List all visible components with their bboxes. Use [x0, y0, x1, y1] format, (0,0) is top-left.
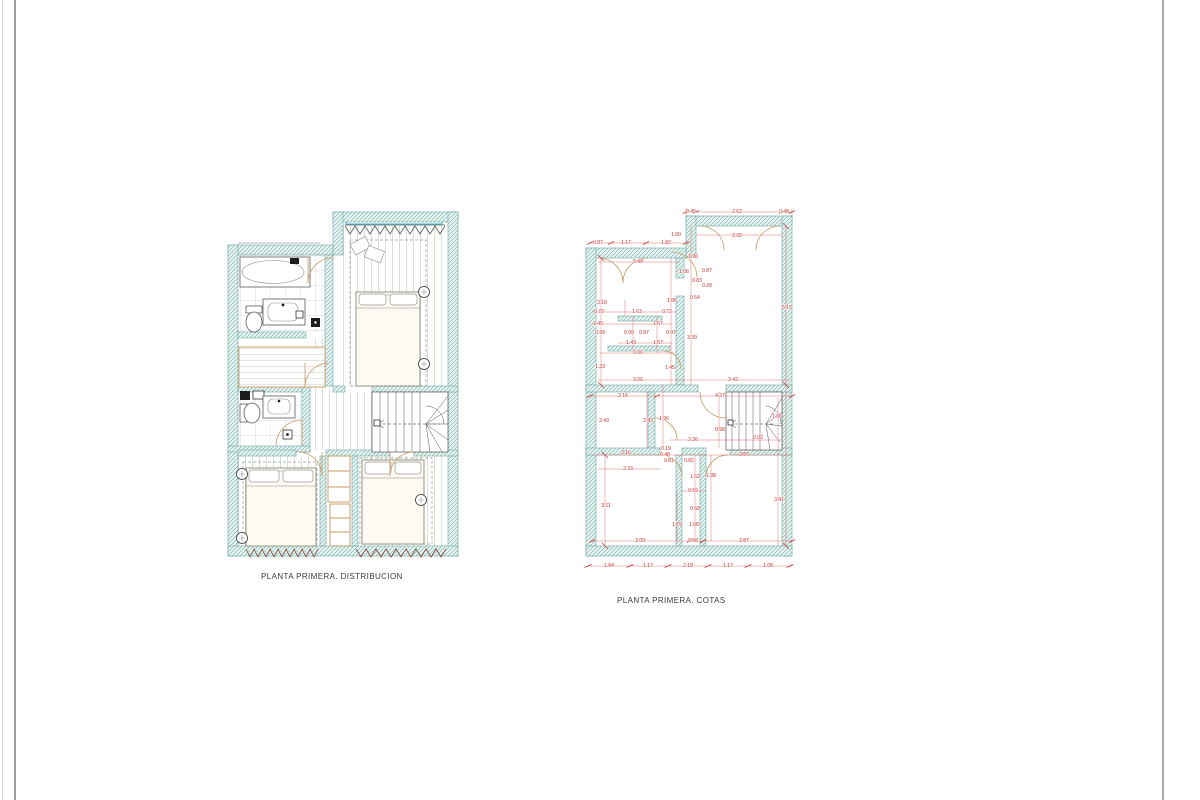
dimension-label: 1.57: [653, 340, 663, 346]
staircase: [372, 392, 448, 452]
dimension-label: 2.18: [683, 563, 693, 569]
dimension-label: 0.72: [662, 309, 672, 315]
plan-title-distribucion: PLANTA PRIMERA. DISTRIBUCION: [261, 572, 403, 581]
dimension-label: 0.82: [684, 458, 694, 464]
bed-left: [246, 468, 316, 546]
windows-cotas: [598, 218, 780, 549]
cabinet-symbol: [253, 391, 264, 399]
dimension-label: 2.43: [643, 418, 653, 424]
dimension-label: 1.17: [643, 563, 653, 569]
dimension-label: 3.39: [687, 335, 697, 341]
dimension-label: 2.33: [623, 466, 633, 472]
bed-right: [362, 460, 424, 544]
dimension-label: 1.17: [621, 240, 631, 246]
electrical-symbol-bath: [311, 318, 320, 327]
dimension-label: 0.97: [666, 330, 676, 336]
wall-lamp-icon-right: [416, 495, 427, 506]
drawing-sheet: 0.452.620.482.921.000.871.171.825.481.90…: [0, 0, 1200, 800]
dimension-label: 2.92: [732, 233, 742, 239]
shower-symbol: [296, 311, 303, 318]
dimension-label: 0.83: [692, 278, 702, 284]
dimension-label: 4.37: [715, 393, 725, 399]
dimension-label: 0.59: [688, 488, 698, 494]
bathtub: [240, 257, 310, 287]
dimension-label: 1.06: [679, 269, 689, 275]
dimension-label: 5.48: [633, 259, 643, 265]
dimension-label: 2.02: [753, 435, 763, 441]
dimension-label: 0.54: [690, 295, 700, 301]
dimension-label: 0.97: [639, 330, 649, 336]
sheet-border-left-outer: [2, 0, 3, 800]
dimension-label: 1.84: [604, 563, 614, 569]
dimension-label: 1.45: [665, 365, 675, 371]
washbasin-wc: [263, 396, 295, 418]
dimension-label: 1.06: [772, 414, 782, 420]
dimension-label: 1.43: [626, 340, 636, 346]
dimension-label: 1.79: [672, 522, 682, 528]
dimension-label: 2.16: [621, 450, 631, 456]
dimension-label: 1.88: [706, 473, 716, 479]
dimension-label: 0.99: [595, 330, 605, 336]
dimension-label: 2.62: [732, 209, 742, 215]
dimension-label: 2.87: [739, 452, 749, 458]
dimension-label: 5.17: [782, 305, 792, 311]
dimension-label: 1.96: [659, 416, 669, 422]
dimension-label: 1.82: [661, 240, 671, 246]
dimension-label: 0.98: [715, 427, 725, 433]
dimension-label: 3.11: [601, 503, 611, 509]
staircase-cotas: [726, 392, 782, 450]
dimension-label: 1.45: [593, 321, 603, 327]
dimension-label: 1.00: [671, 232, 681, 238]
dimension-label: 1.57: [653, 321, 663, 327]
dimension-label: 0.28: [702, 283, 712, 289]
dimension-label: 3.06: [633, 350, 643, 356]
dimension-label: 0.58: [688, 538, 698, 544]
dimension-label: 1.06: [667, 298, 677, 304]
dimension-label: 3.18: [597, 300, 607, 306]
dimension-label: 2.36: [688, 437, 698, 443]
dimension-label: 0.87: [593, 240, 603, 246]
plan-title-cotas: PLANTA PRIMERA. COTAS: [617, 596, 726, 605]
dimension-label: 1.33: [595, 364, 605, 370]
dimension-label: 1.08: [763, 563, 773, 569]
dimension-label: 0.99: [624, 330, 634, 336]
dimension-label: 0.58: [690, 506, 700, 512]
landing: [239, 347, 325, 387]
dimension-label: 1.63: [632, 309, 642, 315]
dimension-label: 3.09: [635, 538, 645, 544]
electrical-symbol-wc: [283, 430, 292, 439]
dimension-label: 1.17: [723, 563, 733, 569]
dimension-label: 3.06: [633, 377, 643, 383]
toilet-wc: [240, 403, 260, 423]
dimension-label: 1.68: [689, 522, 699, 528]
dimension-label: 0.48: [779, 209, 789, 215]
floor-plan-distribucion: [215, 200, 475, 575]
sheet-border-right: [1162, 0, 1164, 800]
toilet-bath: [246, 306, 262, 332]
dimension-label: 0.87: [702, 268, 712, 274]
dimension-label: 0.81: [664, 458, 674, 464]
dimension-label: 3.42: [728, 377, 738, 383]
dimension-label: 0.45: [686, 209, 696, 215]
sheet-border-left-inner: [14, 0, 16, 800]
dimension-label: 1.62: [690, 474, 700, 480]
dimension-label: 2.16: [618, 393, 628, 399]
dimension-label: 0.72: [594, 309, 604, 315]
dimension-label: 3.41: [774, 497, 784, 503]
dimension-label: 2.87: [739, 538, 749, 544]
floor-plan-cotas: 0.452.620.482.921.000.871.171.825.481.90…: [578, 195, 806, 583]
boiler-symbol: [240, 391, 250, 400]
bed-main: [356, 292, 420, 386]
wardrobe-shelves: [328, 456, 350, 546]
dimension-label: 2.43: [599, 418, 609, 424]
dimension-label: 1.90: [688, 254, 698, 260]
